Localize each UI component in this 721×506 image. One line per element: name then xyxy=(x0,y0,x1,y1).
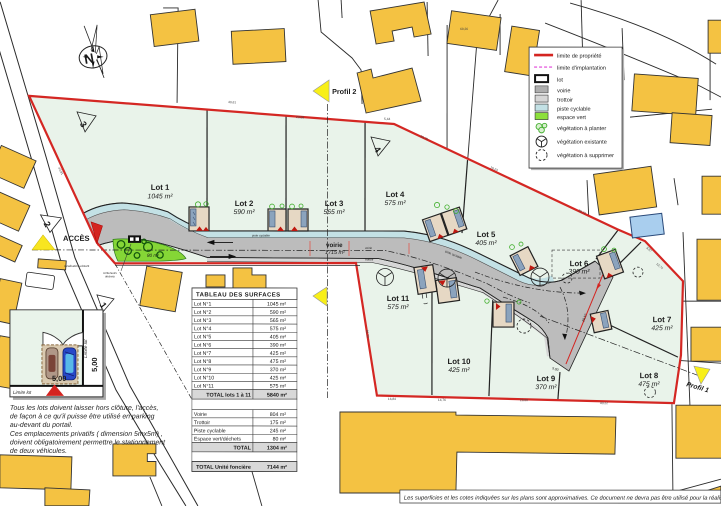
svg-text:végétation à planter: végétation à planter xyxy=(557,126,606,132)
svg-text:40,22: 40,22 xyxy=(600,401,608,405)
svg-text:au-devant du portail.: au-devant du portail. xyxy=(10,422,73,429)
svg-text:Lot N°11: Lot N°11 xyxy=(194,384,214,390)
svg-text:Lot 6: Lot 6 xyxy=(570,259,589,268)
svg-text:7144 m²: 7144 m² xyxy=(267,465,287,471)
svg-text:Lot N°1: Lot N°1 xyxy=(194,302,211,308)
svg-text:Lot N°6: Lot N°6 xyxy=(194,343,211,349)
svg-text:1715 m²: 1715 m² xyxy=(325,250,345,256)
svg-text:voirie: voirie xyxy=(365,246,373,250)
svg-text:565 m²: 565 m² xyxy=(323,209,345,216)
svg-text:Lot 7: Lot 7 xyxy=(653,315,672,324)
svg-text:16,84: 16,84 xyxy=(388,397,396,401)
svg-text:5,44: 5,44 xyxy=(384,117,390,121)
svg-text:23,60: 23,60 xyxy=(520,398,528,402)
svg-text:Les superficies et les cotes i: Les superficies et les cotes indiquées s… xyxy=(404,496,721,502)
svg-text:Lot 5: Lot 5 xyxy=(477,230,496,239)
svg-text:piste cyclable: piste cyclable xyxy=(252,233,270,237)
svg-text:de deux véhicules.: de deux véhicules. xyxy=(10,448,67,455)
svg-text:Lot 2: Lot 2 xyxy=(235,199,254,208)
svg-text:565 m²: 565 m² xyxy=(270,318,286,324)
svg-text:14,76: 14,76 xyxy=(438,398,446,402)
svg-text:575 m²: 575 m² xyxy=(270,384,286,390)
svg-text:60,26: 60,26 xyxy=(460,27,468,31)
svg-text:trottoir: trottoir xyxy=(365,258,374,262)
svg-text:TABLEAU DES SURFACES: TABLEAU DES SURFACES xyxy=(196,292,281,298)
svg-text:575 m²: 575 m² xyxy=(387,304,409,311)
svg-text:Voirie: Voirie xyxy=(194,412,207,418)
svg-text:390 m²: 390 m² xyxy=(568,269,590,276)
svg-text:lot: lot xyxy=(557,78,563,84)
svg-text:5,00: 5,00 xyxy=(52,374,66,383)
svg-text:Espace vert/déchets: Espace vert/déchets xyxy=(194,437,241,443)
svg-text:Lot N°2: Lot N°2 xyxy=(194,310,211,316)
svg-text:Lot N°9: Lot N°9 xyxy=(194,367,211,373)
svg-text:voirie: voirie xyxy=(326,242,343,249)
svg-text:Lot N°10: Lot N°10 xyxy=(194,375,214,381)
svg-text:Lot 10: Lot 10 xyxy=(447,357,471,366)
svg-text:Lot 9: Lot 9 xyxy=(537,374,556,383)
svg-text:espace vert: espace vert xyxy=(557,115,586,121)
svg-text:175 m²: 175 m² xyxy=(270,420,286,426)
svg-text:590 m²: 590 m² xyxy=(270,310,286,316)
svg-text:370 m²: 370 m² xyxy=(535,384,557,391)
svg-text:Tous les lots doivent laisser: Tous les lots doivent laisser hors clôtu… xyxy=(10,405,159,412)
svg-text:425 m²: 425 m² xyxy=(270,375,286,381)
svg-text:Lot 11: Lot 11 xyxy=(387,294,410,303)
svg-text:Lot N°8: Lot N°8 xyxy=(194,359,211,365)
svg-text:575 m²: 575 m² xyxy=(270,326,286,332)
svg-text:425 m²: 425 m² xyxy=(448,367,470,374)
svg-text:Limite lot: Limite lot xyxy=(83,339,88,358)
svg-text:de façon à ce qu'il puisse êtr: de façon à ce qu'il puisse être utilisé … xyxy=(10,413,155,420)
svg-text:TOTAL: TOTAL xyxy=(233,445,251,451)
svg-text:végétation à supprimer: végétation à supprimer xyxy=(557,153,614,159)
svg-text:425 m²: 425 m² xyxy=(651,325,673,332)
svg-text:Profil 2: Profil 2 xyxy=(332,87,356,96)
svg-text:1304 m²: 1304 m² xyxy=(267,445,287,451)
svg-text:475 m²: 475 m² xyxy=(270,359,286,365)
svg-text:Lot N°7: Lot N°7 xyxy=(194,351,211,357)
svg-text:390 m²: 390 m² xyxy=(270,343,286,349)
svg-text:590 m²: 590 m² xyxy=(233,209,255,216)
svg-text:Lot 1: Lot 1 xyxy=(151,183,170,192)
svg-text:voirie: voirie xyxy=(557,88,570,94)
svg-text:Lot 4: Lot 4 xyxy=(386,190,405,199)
svg-text:575 m²: 575 m² xyxy=(384,200,406,207)
svg-text:TOTAL Unité foncière: TOTAL Unité foncière xyxy=(196,465,251,471)
svg-text:limite d'implantation: limite d'implantation xyxy=(557,66,606,72)
svg-text:40,61: 40,61 xyxy=(228,100,236,105)
svg-text:Lot 3: Lot 3 xyxy=(325,199,344,208)
svg-text:1045 m²: 1045 m² xyxy=(148,193,174,200)
svg-text:425 m²: 425 m² xyxy=(270,351,286,357)
svg-text:80 m²: 80 m² xyxy=(147,253,159,258)
svg-text:piste cyclable: piste cyclable xyxy=(557,107,591,113)
svg-text:1045 m²: 1045 m² xyxy=(267,302,286,308)
svg-text:trottoir: trottoir xyxy=(557,98,573,104)
svg-text:5,00: 5,00 xyxy=(90,357,99,371)
svg-text:doivent obligatoirement permet: doivent obligatoirement permettre le sta… xyxy=(10,439,166,446)
svg-text:déchets: déchets xyxy=(105,274,115,278)
svg-text:23,09: 23,09 xyxy=(296,115,304,120)
svg-text:370 m²: 370 m² xyxy=(270,367,286,373)
svg-text:Lot N°5: Lot N°5 xyxy=(194,334,211,340)
svg-text:limite de propriété: limite de propriété xyxy=(557,54,601,60)
svg-text:80 m²: 80 m² xyxy=(273,437,287,443)
svg-text:canalisation existant: canalisation existant xyxy=(64,264,89,268)
svg-text:Trottoir: Trottoir xyxy=(194,420,211,426)
svg-text:405 m²: 405 m² xyxy=(270,334,286,340)
svg-text:TOTAL lots 1 à 11: TOTAL lots 1 à 11 xyxy=(206,393,251,399)
svg-text:Limite lot: Limite lot xyxy=(13,390,32,395)
svg-text:245 m²: 245 m² xyxy=(270,428,286,434)
svg-text:5840 m²: 5840 m² xyxy=(267,393,287,399)
svg-text:ACCÈS: ACCÈS xyxy=(63,234,90,243)
svg-text:Lot N°4: Lot N°4 xyxy=(194,326,211,332)
svg-text:Ces emplacements privatifs ( d: Ces emplacements privatifs ( dimension 5… xyxy=(10,431,163,438)
svg-text:475 m²: 475 m² xyxy=(638,381,660,388)
svg-text:405 m²: 405 m² xyxy=(475,240,497,247)
svg-text:Lot 8: Lot 8 xyxy=(640,371,659,380)
svg-text:804 m²: 804 m² xyxy=(270,412,286,418)
svg-text:Lot N°3: Lot N°3 xyxy=(194,318,211,324)
svg-text:Piste cyclable: Piste cyclable xyxy=(194,428,226,434)
svg-text:végétation existante: végétation existante xyxy=(557,140,607,146)
